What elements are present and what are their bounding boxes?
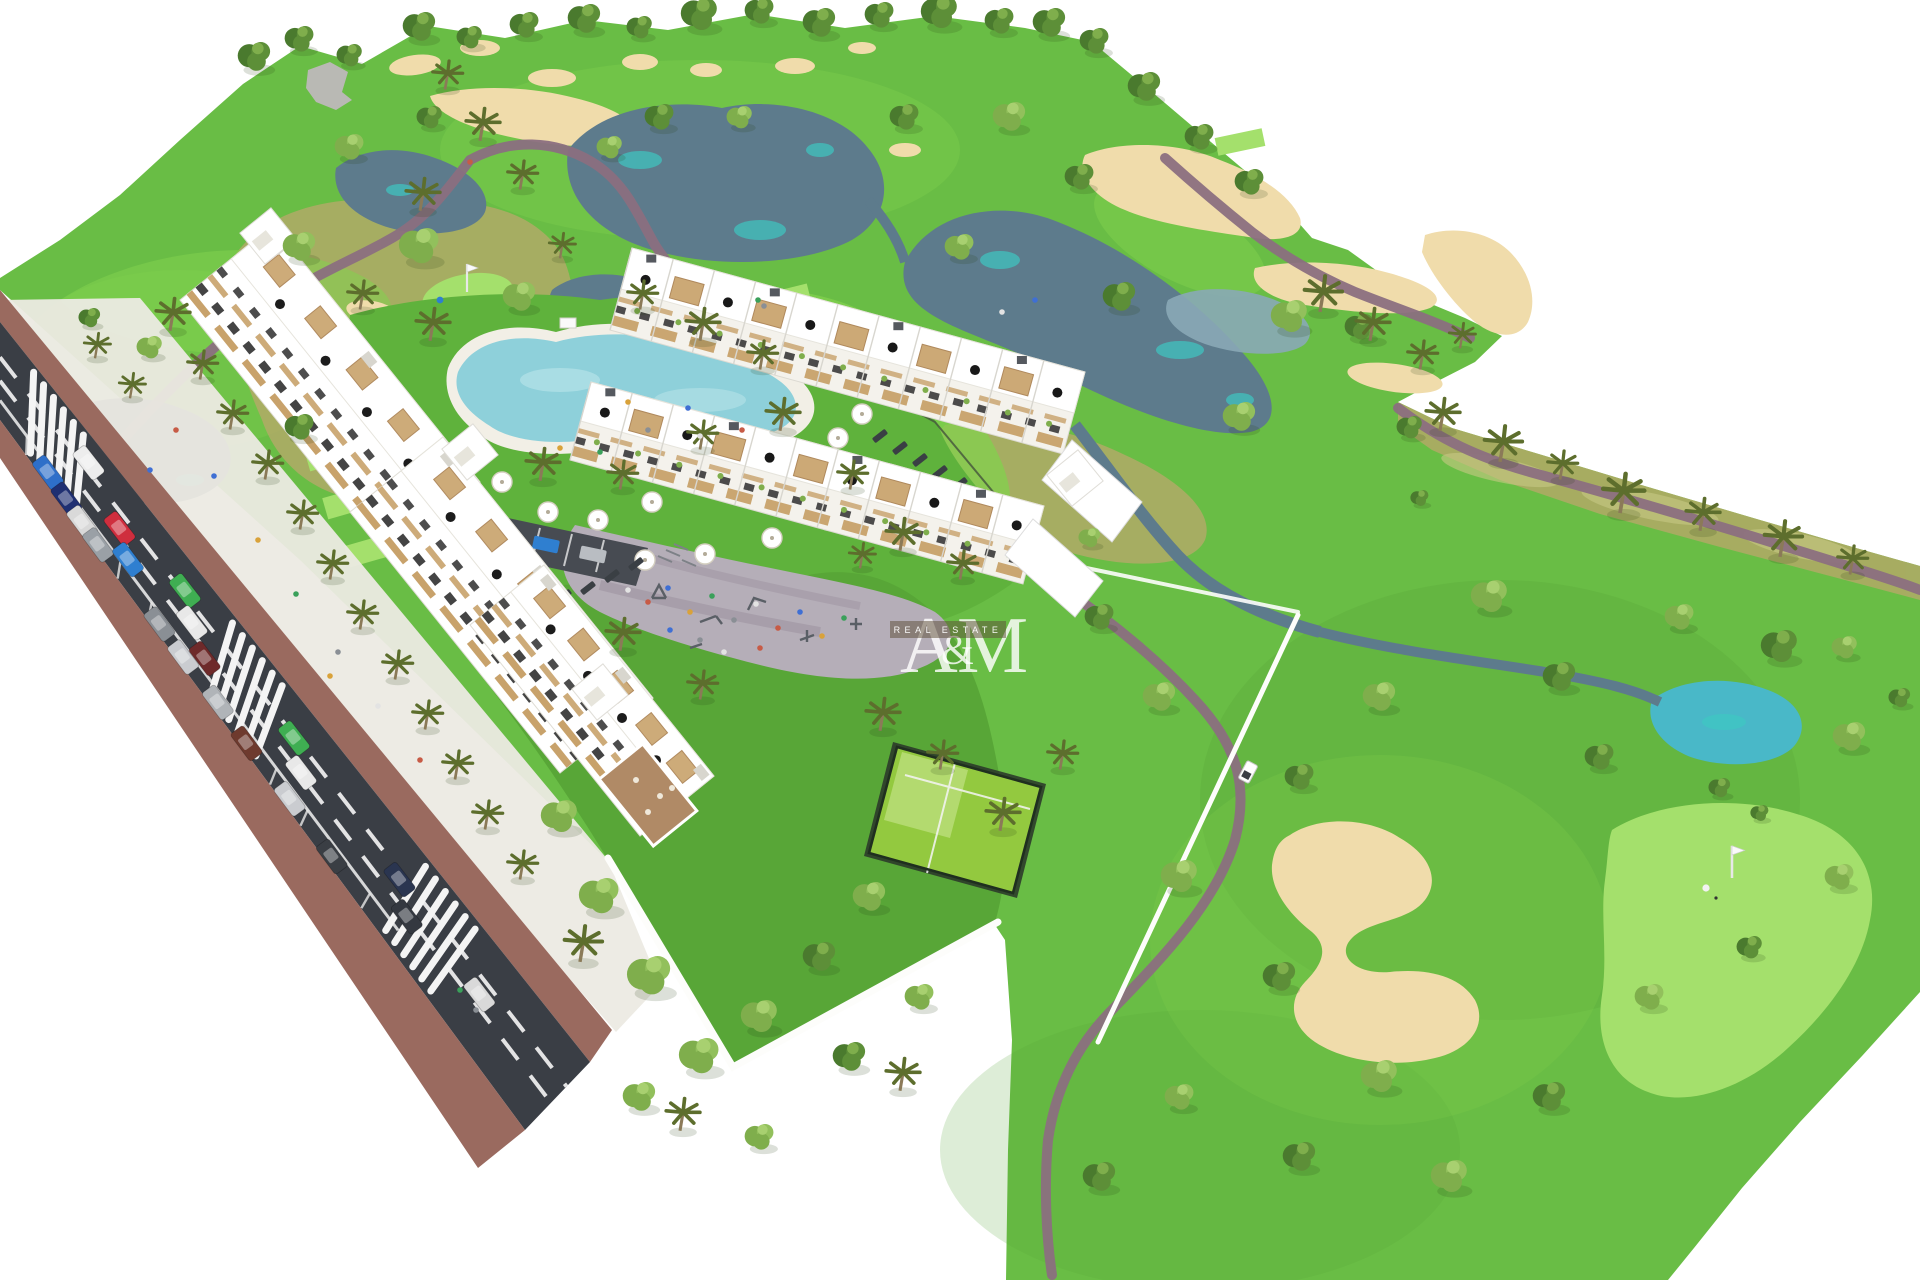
person	[797, 609, 803, 615]
person	[327, 673, 333, 679]
sun-umbrella	[642, 492, 662, 512]
golfer	[437, 297, 444, 304]
tree-icon	[623, 1082, 660, 1116]
person	[173, 427, 179, 433]
person	[841, 615, 847, 621]
golf-ball	[1714, 896, 1717, 899]
person	[625, 587, 631, 593]
person	[697, 433, 703, 439]
person	[739, 427, 745, 433]
sun-umbrella	[538, 502, 558, 522]
palm-tree-icon	[886, 1059, 920, 1098]
person	[667, 627, 673, 633]
person	[761, 303, 767, 309]
person	[1032, 297, 1038, 303]
person	[709, 593, 715, 599]
sun-umbrella	[828, 428, 848, 448]
tree-icon	[238, 42, 275, 76]
tree-icon	[745, 1124, 778, 1154]
person	[293, 591, 299, 597]
tree-icon	[833, 1042, 870, 1076]
person	[255, 537, 261, 543]
person	[819, 633, 825, 639]
person	[687, 609, 693, 615]
person	[645, 427, 651, 433]
person	[731, 617, 737, 623]
person	[645, 599, 651, 605]
golfer	[1702, 884, 1709, 891]
sun-umbrella	[588, 510, 608, 530]
sun-umbrella	[852, 404, 872, 424]
person	[665, 585, 671, 591]
person	[685, 405, 691, 411]
person	[473, 1007, 479, 1013]
person	[375, 703, 381, 709]
sun-umbrella	[762, 528, 782, 548]
person	[775, 625, 781, 631]
palm-tree-icon	[1426, 399, 1460, 438]
person	[697, 637, 703, 643]
palm-tree-icon	[666, 1099, 700, 1138]
aerial-render-svg	[0, 0, 1920, 1280]
person	[999, 309, 1005, 315]
person	[755, 297, 761, 303]
person	[625, 399, 631, 405]
sun-umbrella	[695, 544, 715, 564]
person	[557, 445, 563, 451]
person	[335, 649, 341, 655]
person	[721, 649, 727, 655]
render-canvas: A & M REAL ESTATE	[0, 0, 1920, 1280]
person	[467, 159, 473, 165]
sun-umbrella	[492, 472, 512, 492]
person	[757, 645, 763, 651]
person	[417, 757, 423, 763]
person	[457, 987, 463, 993]
tree-icon	[905, 984, 938, 1014]
person	[211, 473, 217, 479]
person	[597, 449, 603, 455]
tree-icon	[285, 26, 318, 56]
person	[147, 467, 153, 473]
person	[753, 601, 759, 607]
